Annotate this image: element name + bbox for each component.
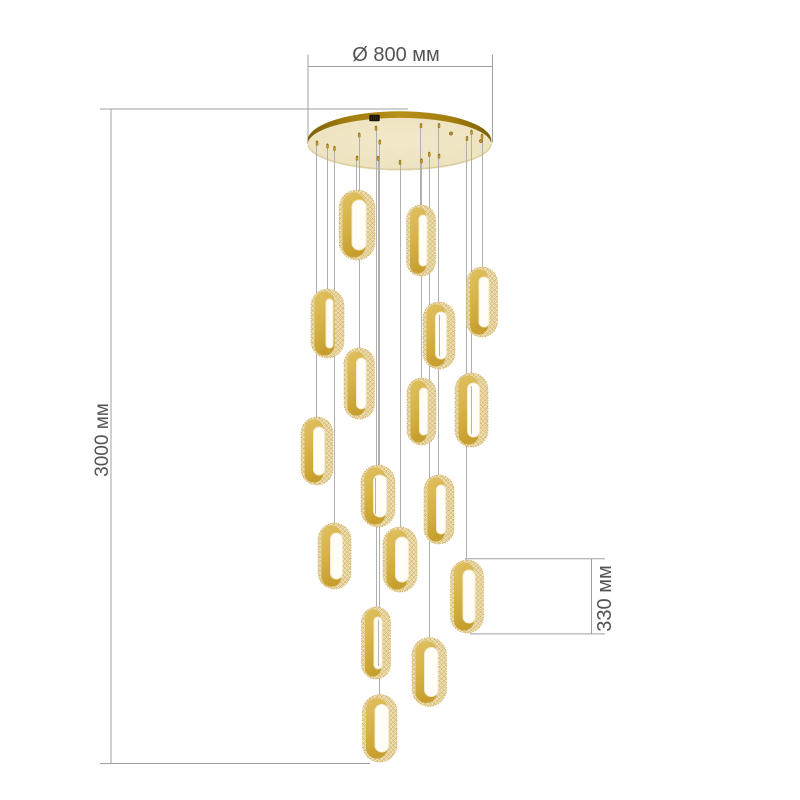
svg-text:3000 мм: 3000 мм [92,403,113,477]
svg-text:330 мм: 330 мм [594,565,616,631]
svg-text:Ø 800 мм: Ø 800 мм [352,44,440,66]
